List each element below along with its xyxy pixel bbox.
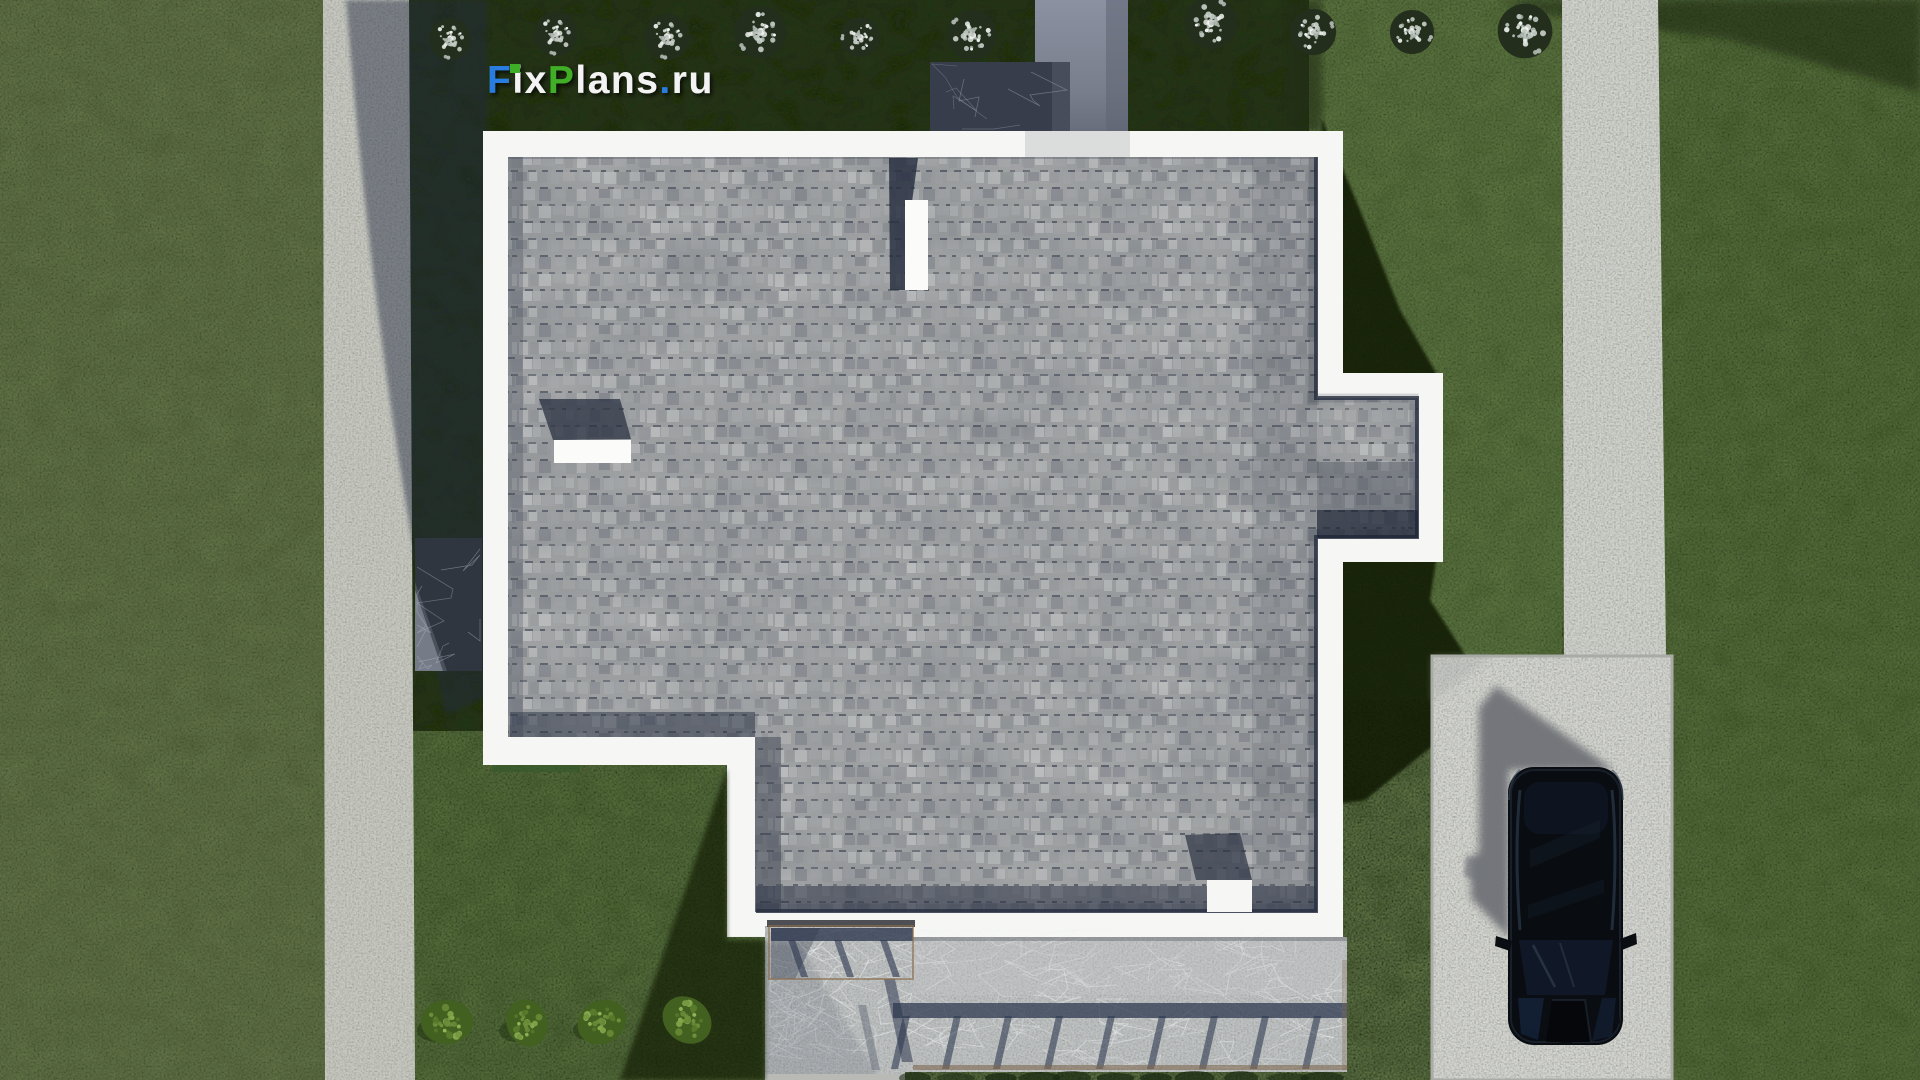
svg-text:FixPlans.ru: FixPlans.ru	[487, 59, 714, 102]
